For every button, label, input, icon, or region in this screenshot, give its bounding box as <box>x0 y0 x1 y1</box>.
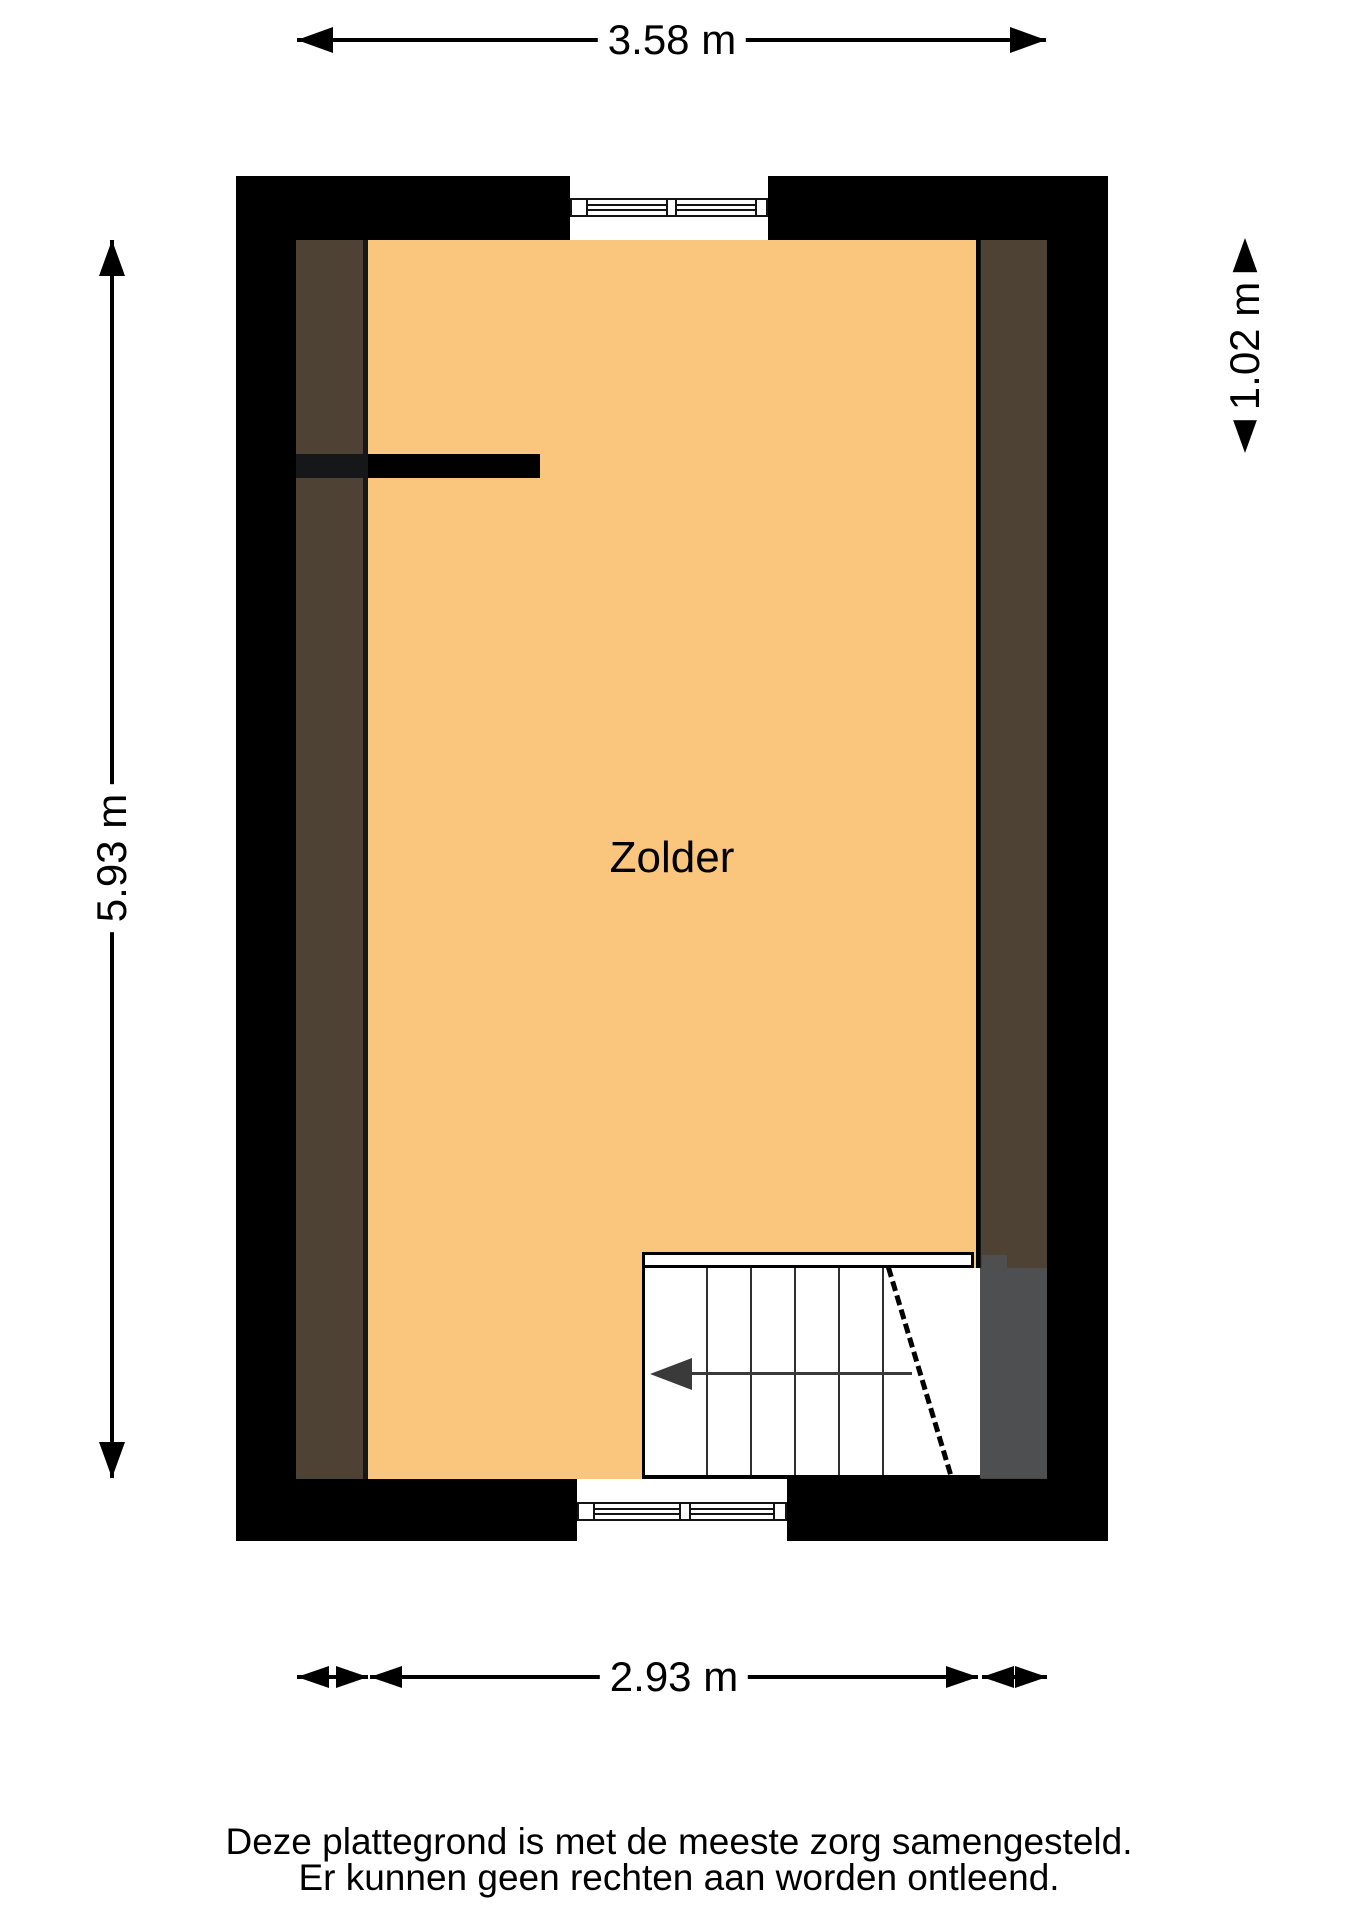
low-headroom-zone-right <box>980 240 1047 1479</box>
window-frame-line <box>691 1513 773 1515</box>
stair-border-bottom <box>642 1475 980 1479</box>
stair-direction-line <box>692 1372 912 1375</box>
window-frame-line <box>679 1504 681 1519</box>
window-frame-line <box>593 1504 595 1519</box>
arrow-left-icon <box>982 1666 1014 1688</box>
arrow-up-icon <box>99 240 125 276</box>
arrow-down-icon <box>99 1442 125 1478</box>
arrow-up-icon <box>1232 238 1258 274</box>
floor-plan: Zolder 3.58 m 5.93 m 1.02 m 2.93 m Deze … <box>0 0 1358 1920</box>
stair-landing-edge <box>642 1252 974 1268</box>
window-frame-line <box>773 1504 775 1519</box>
window-frame-line <box>595 1508 679 1510</box>
disclaimer-line-2: Er kunnen geen rechten aan worden ontlee… <box>226 1860 1133 1896</box>
room-label: Zolder <box>610 836 735 880</box>
arrow-down-icon <box>1232 417 1258 453</box>
low-headroom-zone-left <box>296 240 368 1479</box>
disclaimer-line-1: Deze plattegrond is met de meeste zorg s… <box>226 1824 1133 1860</box>
window-frame-line <box>755 200 757 215</box>
stair-trimmer-block <box>982 1255 1007 1268</box>
window-top-icon <box>570 198 768 217</box>
arrow-right-icon <box>946 1666 978 1688</box>
window-frame-line <box>588 209 666 211</box>
window-frame-line <box>586 200 588 215</box>
arrow-left-icon <box>297 1666 329 1688</box>
stair-direction-arrow-icon <box>650 1358 692 1390</box>
dimension-label-top: 3.58 m <box>598 17 746 63</box>
arrow-right-icon <box>1015 1666 1047 1688</box>
stair-border-left <box>642 1268 645 1479</box>
dimension-label-right: 1.02 m <box>1222 272 1268 420</box>
arrow-left-icon <box>297 27 333 53</box>
arrow-right-icon <box>336 1666 368 1688</box>
window-frame-line <box>666 200 668 215</box>
window-bottom-icon <box>577 1502 787 1521</box>
window-frame-line <box>588 204 666 206</box>
dimension-label-bottom: 2.93 m <box>600 1654 748 1700</box>
window-frame-line <box>691 1508 773 1510</box>
arrow-left-icon <box>370 1666 402 1688</box>
window-frame-line <box>675 200 677 215</box>
window-frame-line <box>677 209 755 211</box>
arrow-right-icon <box>1010 27 1046 53</box>
window-frame-line <box>689 1504 691 1519</box>
dimension-label-left: 5.93 m <box>89 784 135 932</box>
window-frame-line <box>595 1513 679 1515</box>
window-frame-line <box>677 204 755 206</box>
disclaimer: Deze plattegrond is met de meeste zorg s… <box>226 1824 1133 1896</box>
